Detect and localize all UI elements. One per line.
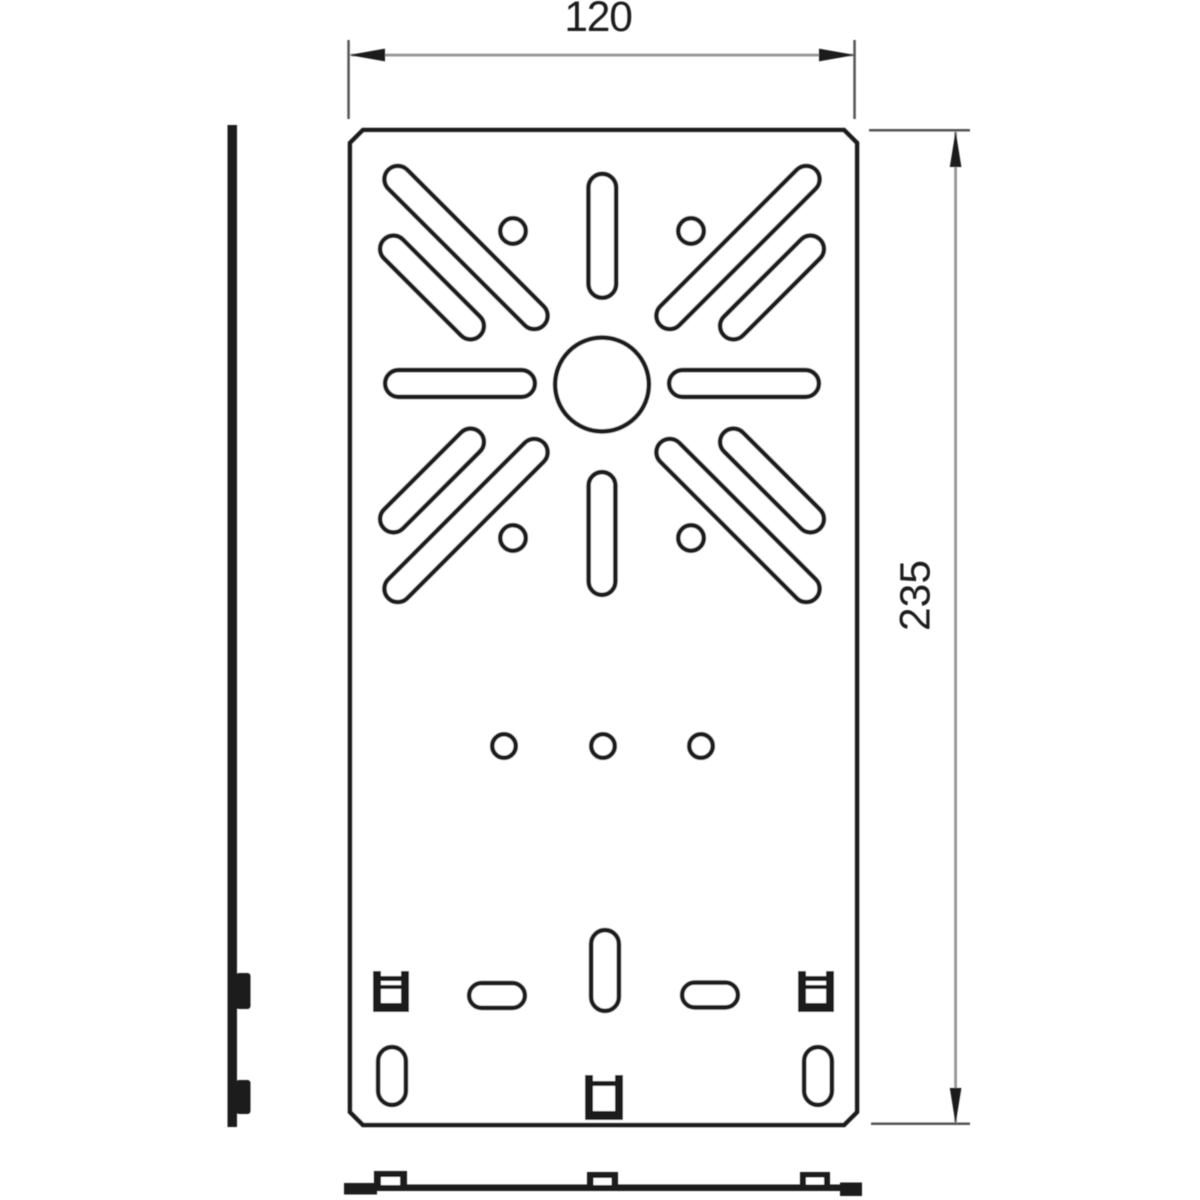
- svg-text:235: 235: [893, 560, 940, 631]
- svg-text:120: 120: [564, 0, 631, 41]
